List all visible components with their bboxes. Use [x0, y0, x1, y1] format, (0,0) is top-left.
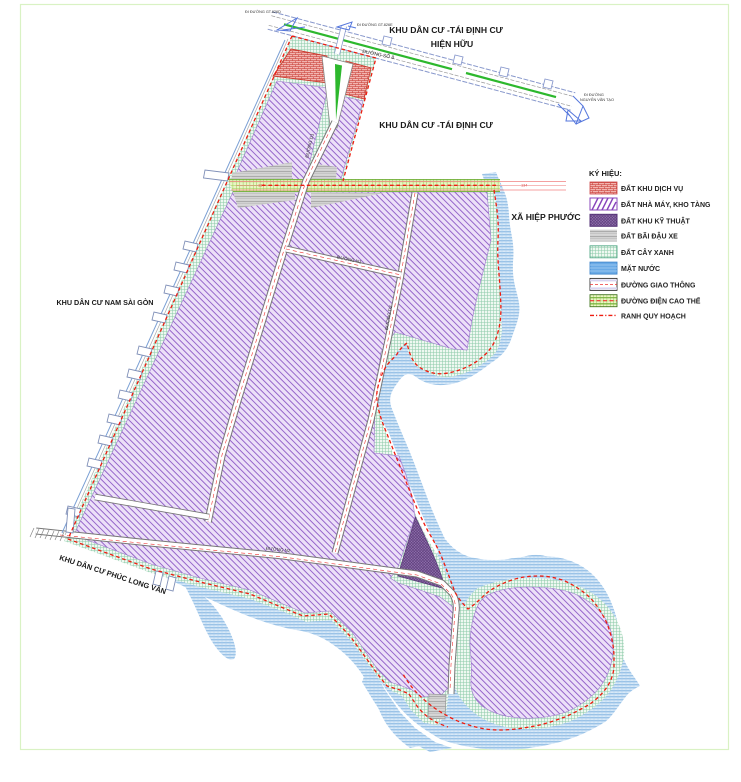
- svg-text:RANH QUY HOẠCH: RANH QUY HOẠCH: [621, 313, 686, 320]
- svg-text:NGUYỄN VĂN TẠO: NGUYỄN VĂN TẠO: [580, 97, 614, 102]
- svg-text:HIỆN HỮU: HIỆN HỮU: [431, 38, 473, 49]
- svg-text:KHU DÂN CƯ -TÁI ĐỊNH CƯ: KHU DÂN CƯ -TÁI ĐỊNH CƯ: [389, 24, 503, 35]
- svg-text:XÃ HIỆP PHƯỚC: XÃ HIỆP PHƯỚC: [511, 211, 580, 222]
- svg-text:ĐƯỜNG GIAO THÔNG: ĐƯỜNG GIAO THÔNG: [621, 280, 696, 289]
- svg-text:ĐI ĐƯỜNG GT.826E: ĐI ĐƯỜNG GT.826E: [357, 22, 393, 27]
- svg-text:134: 134: [521, 184, 527, 188]
- svg-text:KÝ HIỆU:: KÝ HIỆU:: [589, 169, 622, 178]
- svg-text:ĐI ĐƯỜNG GT.826D: ĐI ĐƯỜNG GT.826D: [245, 9, 281, 14]
- svg-text:MẶT NƯỚC: MẶT NƯỚC: [621, 264, 660, 273]
- svg-text:KHU DÂN CƯ -TÁI ĐỊNH CƯ: KHU DÂN CƯ -TÁI ĐỊNH CƯ: [379, 119, 493, 130]
- svg-text:ĐI ĐƯỜNG: ĐI ĐƯỜNG: [584, 92, 604, 97]
- svg-text:KHU DÂN CƯ NAM SÀI GÒN: KHU DÂN CƯ NAM SÀI GÒN: [56, 298, 153, 307]
